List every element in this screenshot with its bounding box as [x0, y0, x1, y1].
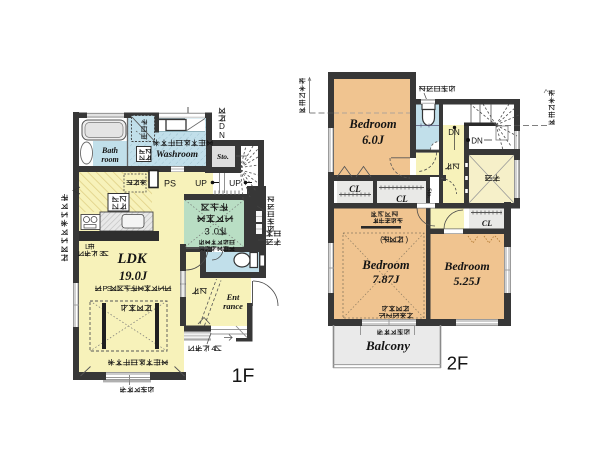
svg-text:D: D [219, 122, 225, 131]
svg-text:rance: rance [223, 301, 243, 311]
svg-text:Washroom: Washroom [156, 150, 198, 160]
svg-text:L: L [85, 244, 89, 251]
svg-text:6.0J: 6.0J [362, 133, 385, 147]
svg-text:7.87J: 7.87J [373, 272, 401, 286]
svg-text:UP: UP [229, 178, 241, 188]
svg-text:): ) [405, 235, 408, 244]
svg-text:19.0J: 19.0J [119, 269, 148, 283]
svg-text:Bedroom: Bedroom [361, 258, 410, 272]
svg-text:0: 0 [214, 226, 219, 237]
svg-text:4: 4 [211, 344, 215, 353]
svg-text:PS: PS [164, 179, 176, 189]
svg-text:DN: DN [448, 128, 460, 137]
svg-text:room: room [101, 155, 118, 164]
svg-text:Sto.: Sto. [426, 188, 433, 199]
svg-text:Sto.: Sto. [217, 152, 229, 161]
svg-text:Bedroom: Bedroom [348, 117, 397, 131]
svg-text:Balcony: Balcony [365, 338, 410, 353]
svg-text:DN: DN [471, 137, 483, 146]
svg-text:UP: UP [195, 178, 207, 188]
svg-text:3: 3 [205, 226, 210, 237]
svg-text:2F: 2F [447, 353, 469, 374]
svg-text:N: N [219, 131, 225, 140]
svg-text:CL: CL [396, 194, 408, 204]
svg-text:3: 3 [99, 251, 103, 258]
svg-text:Bath: Bath [101, 146, 119, 155]
svg-text:CL: CL [482, 219, 492, 228]
svg-text:5.25J: 5.25J [454, 274, 482, 288]
svg-text:LDK: LDK [117, 251, 148, 267]
svg-text:CL: CL [349, 184, 361, 194]
svg-text:1F: 1F [232, 365, 255, 387]
svg-text:Bedroom: Bedroom [443, 259, 489, 273]
